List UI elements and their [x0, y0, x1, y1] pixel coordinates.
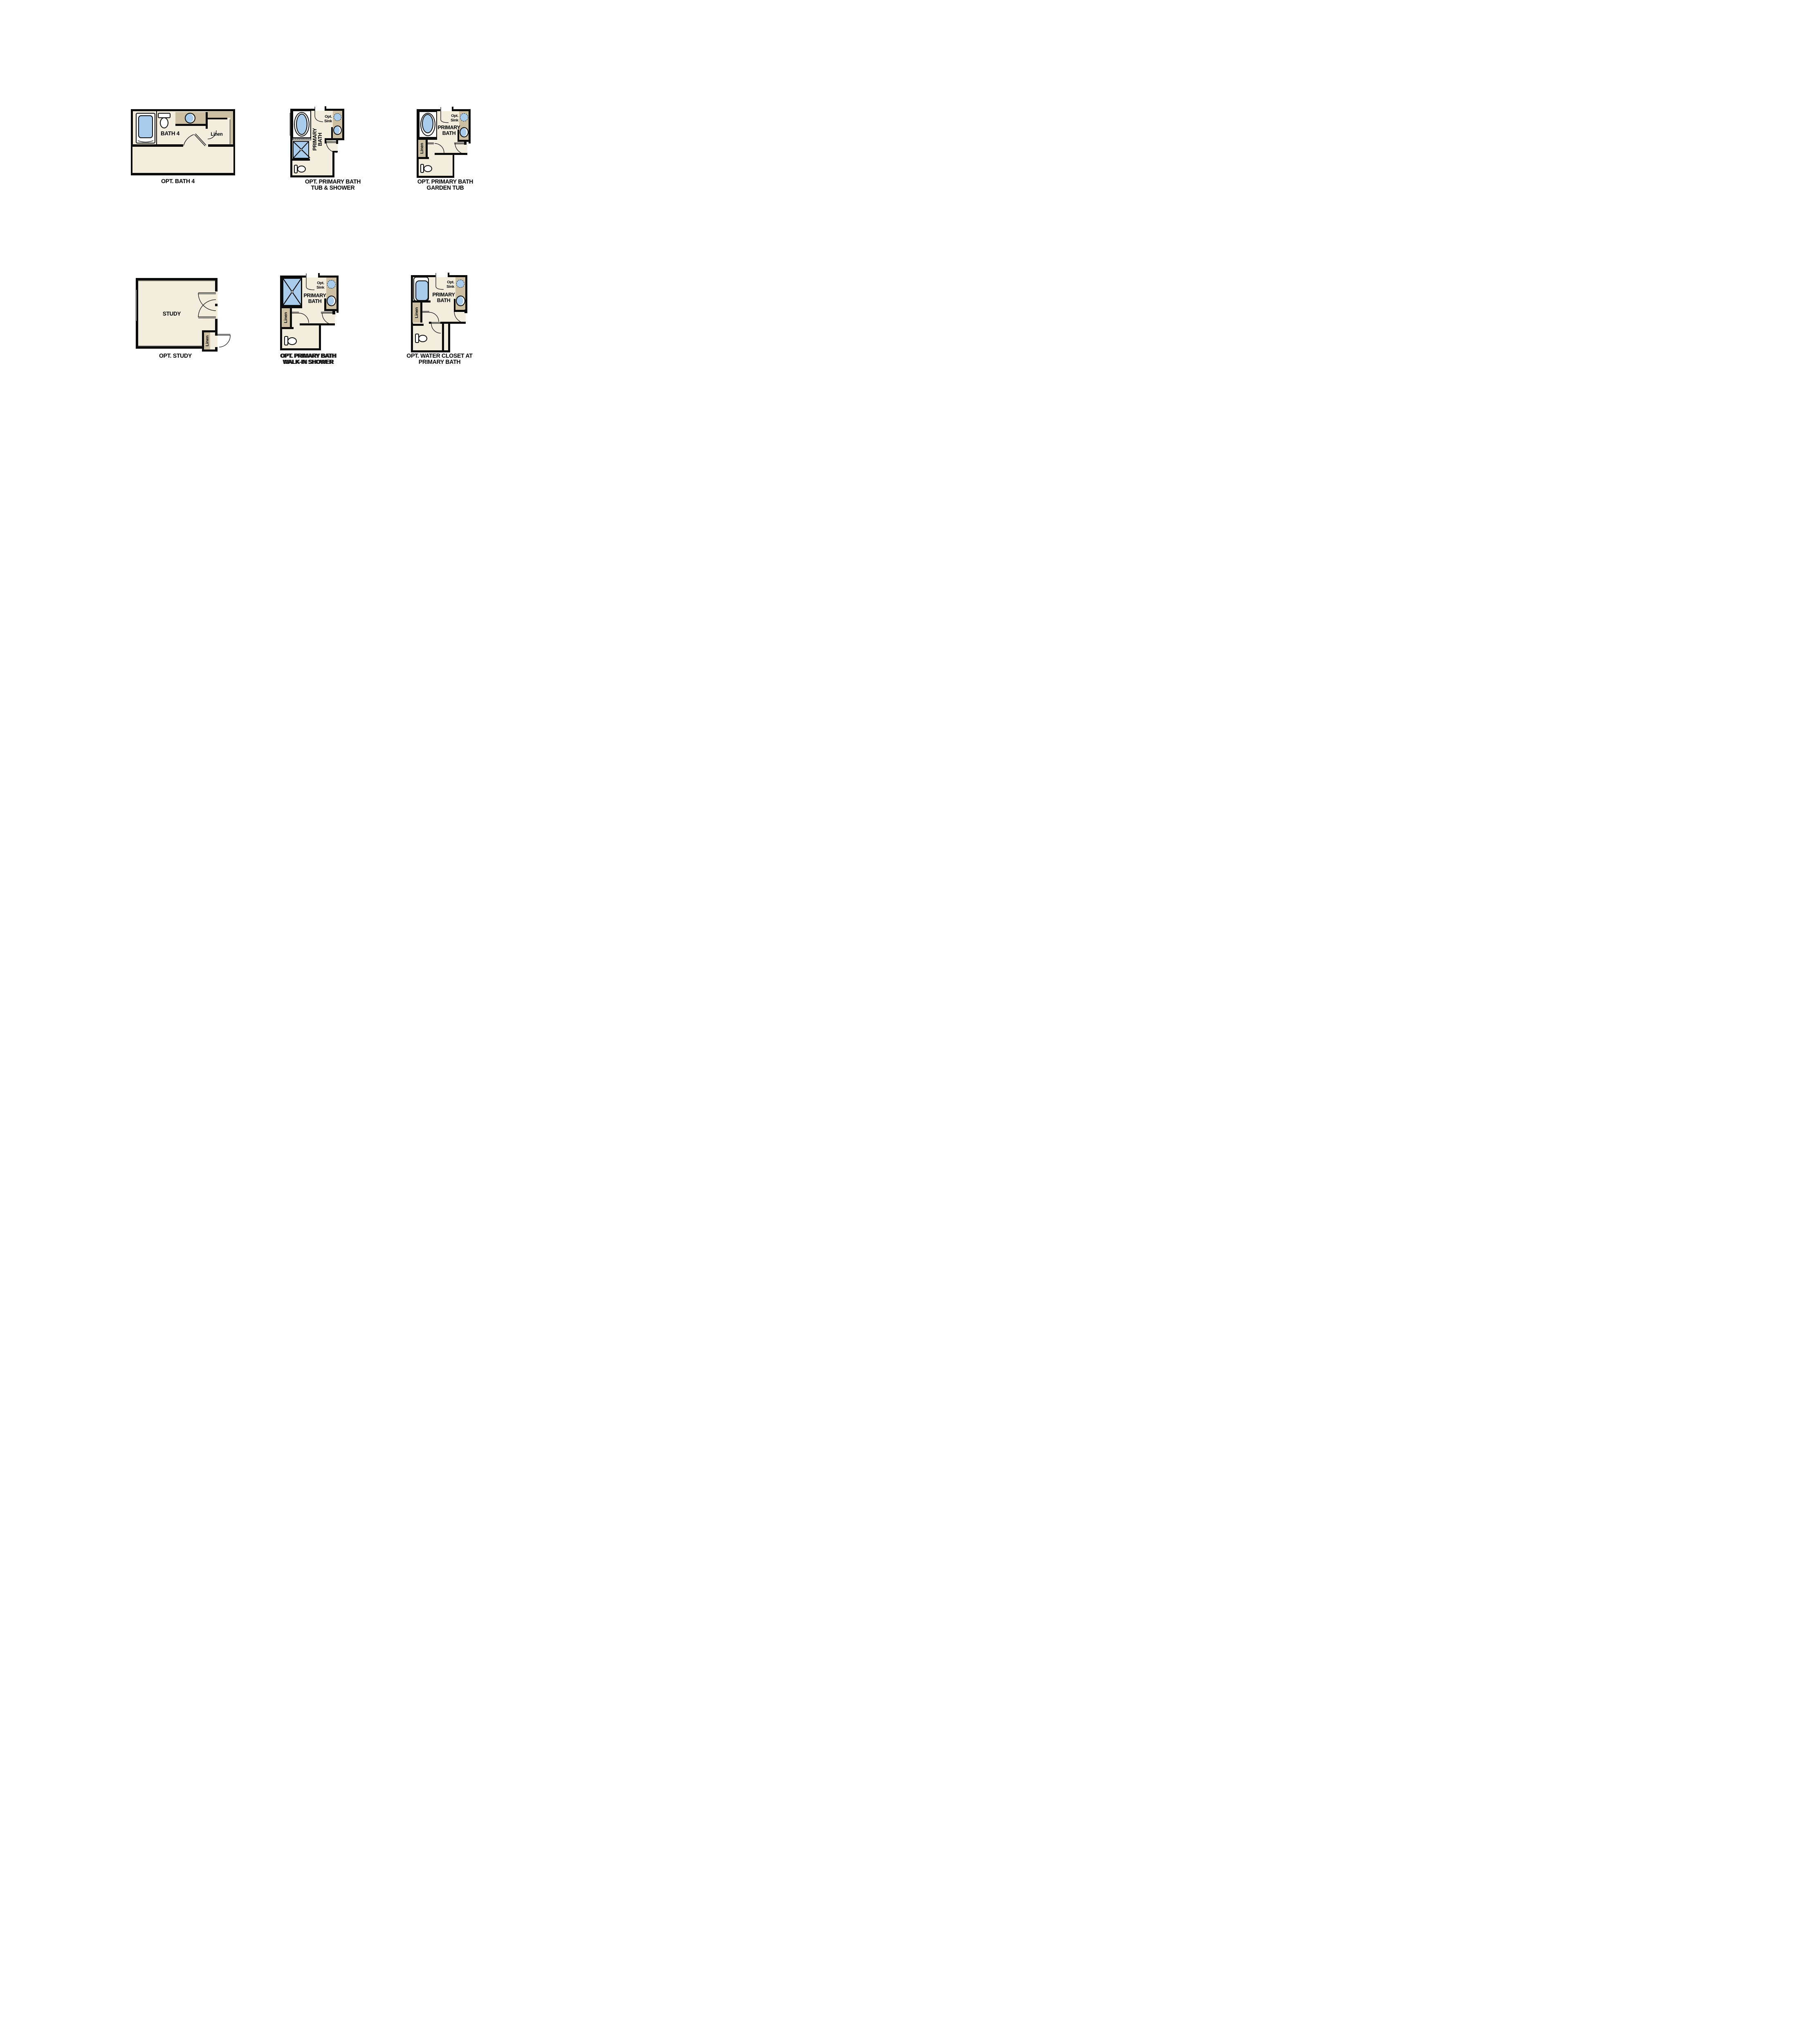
plan-linework	[417, 109, 471, 178]
plan-caption: OPT. PRIMARY BATH TUB & SHOWER	[274, 179, 393, 191]
plan-linework	[280, 276, 339, 350]
floorplan-primary-bath-tub-shower: PRIMARY BATH Opt. Sink	[290, 109, 344, 177]
plan-linework	[411, 275, 467, 352]
floorplan-opt-bath-4: BATH 4 Linen	[131, 109, 235, 175]
plan-linework	[290, 109, 344, 177]
plan-caption: OPT. STUDY	[116, 353, 235, 359]
floorplan-primary-bath-walk-in-shower: Linen PRIMARY BATH Opt. Sink	[280, 276, 339, 350]
floorplan-primary-bath-garden-tub: Linen PRIMARY BATH Opt. Sink	[417, 109, 471, 178]
plan-caption: OPT. BATH 4	[119, 179, 238, 185]
floorplan-water-closet-primary-bath: Linen PRIMARY BATH Opt. Sink	[411, 275, 467, 352]
plan-linework	[136, 275, 232, 353]
floorplan-opt-study: STUDY Linen	[136, 275, 232, 353]
plan-caption: OPT. WATER CLOSET AT PRIMARY BATH	[380, 353, 499, 365]
plan-caption: OPT. PRIMARY BATH WALK-IN SHOWER	[249, 353, 368, 365]
plan-caption: OPT. PRIMARY BATH GARDEN TUB	[386, 179, 505, 191]
plan-linework	[131, 109, 235, 175]
